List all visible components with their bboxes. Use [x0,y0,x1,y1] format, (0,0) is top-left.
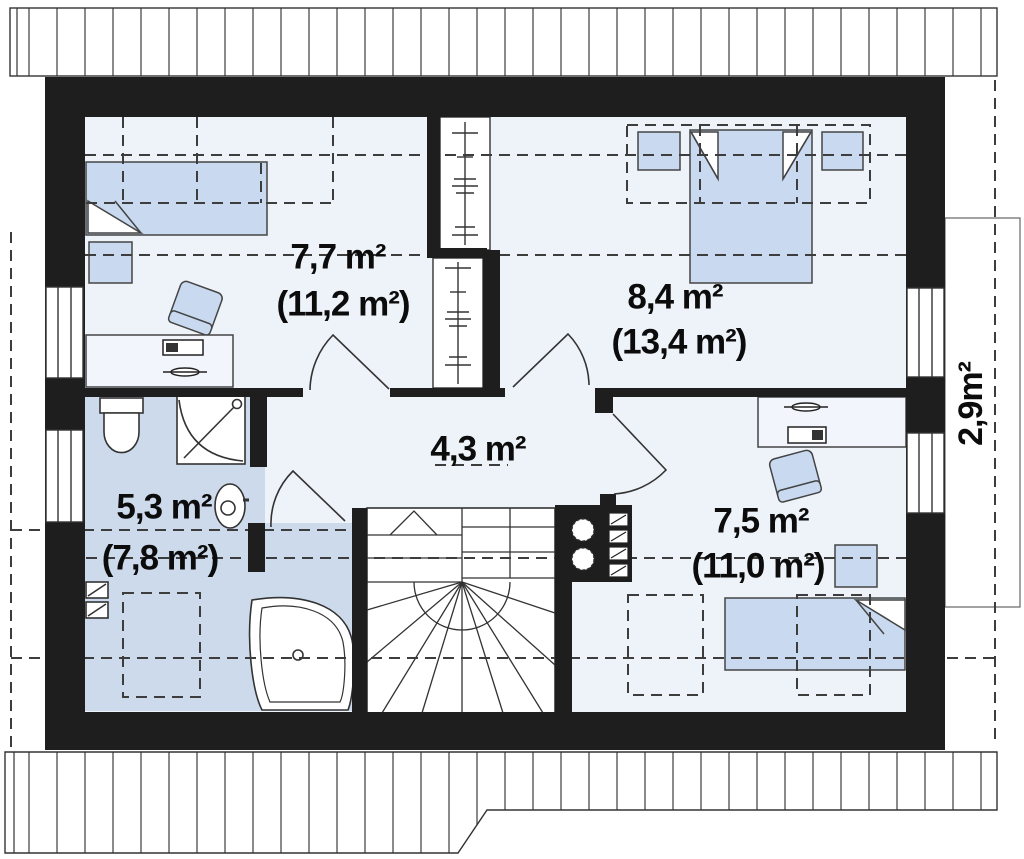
label-bedroom-3-total: (11,0 m²) [692,549,825,584]
label-bedroom-2-usable: 8,4 m² [627,280,722,315]
window [46,430,83,522]
desk [758,397,906,447]
label-bedroom-2-total: (13,4 m²) [612,325,747,360]
bedside-table [822,132,863,170]
chimney-flue [572,519,594,541]
wall-top [45,77,945,117]
label-bathroom-usable: 5,3 m² [116,490,211,525]
bedside-table [638,132,680,170]
window [907,433,944,513]
floor-plan: 7,7 m² (11,2 m²) 8,4 m² (13,4 m²) 4,3 m²… [0,0,1024,859]
bedside-table [89,242,132,283]
window [46,287,83,378]
roof-overhang-top [10,8,997,76]
label-bathroom-total: (7,8 m²) [102,541,218,576]
toilet-bowl [104,413,139,453]
toilet-tank [100,398,143,413]
side-table [835,545,877,587]
roof-overhang-bottom [5,752,997,853]
label-balcony-usable: 2,9m² [954,362,988,446]
desk [86,335,233,387]
wall-bottom [45,712,945,750]
label-bedroom-3-usable: 7,5 m² [713,504,808,539]
wall-right [906,77,945,750]
winder-staircase [367,508,555,713]
wall-left [45,77,85,750]
window [907,288,944,377]
chimney-flue [572,548,594,570]
label-hall-usable: 4,3 m² [430,432,525,467]
label-bedroom-1-total: (11,2 m²) [277,287,410,322]
label-bedroom-1-usable: 7,7 m² [290,240,385,275]
